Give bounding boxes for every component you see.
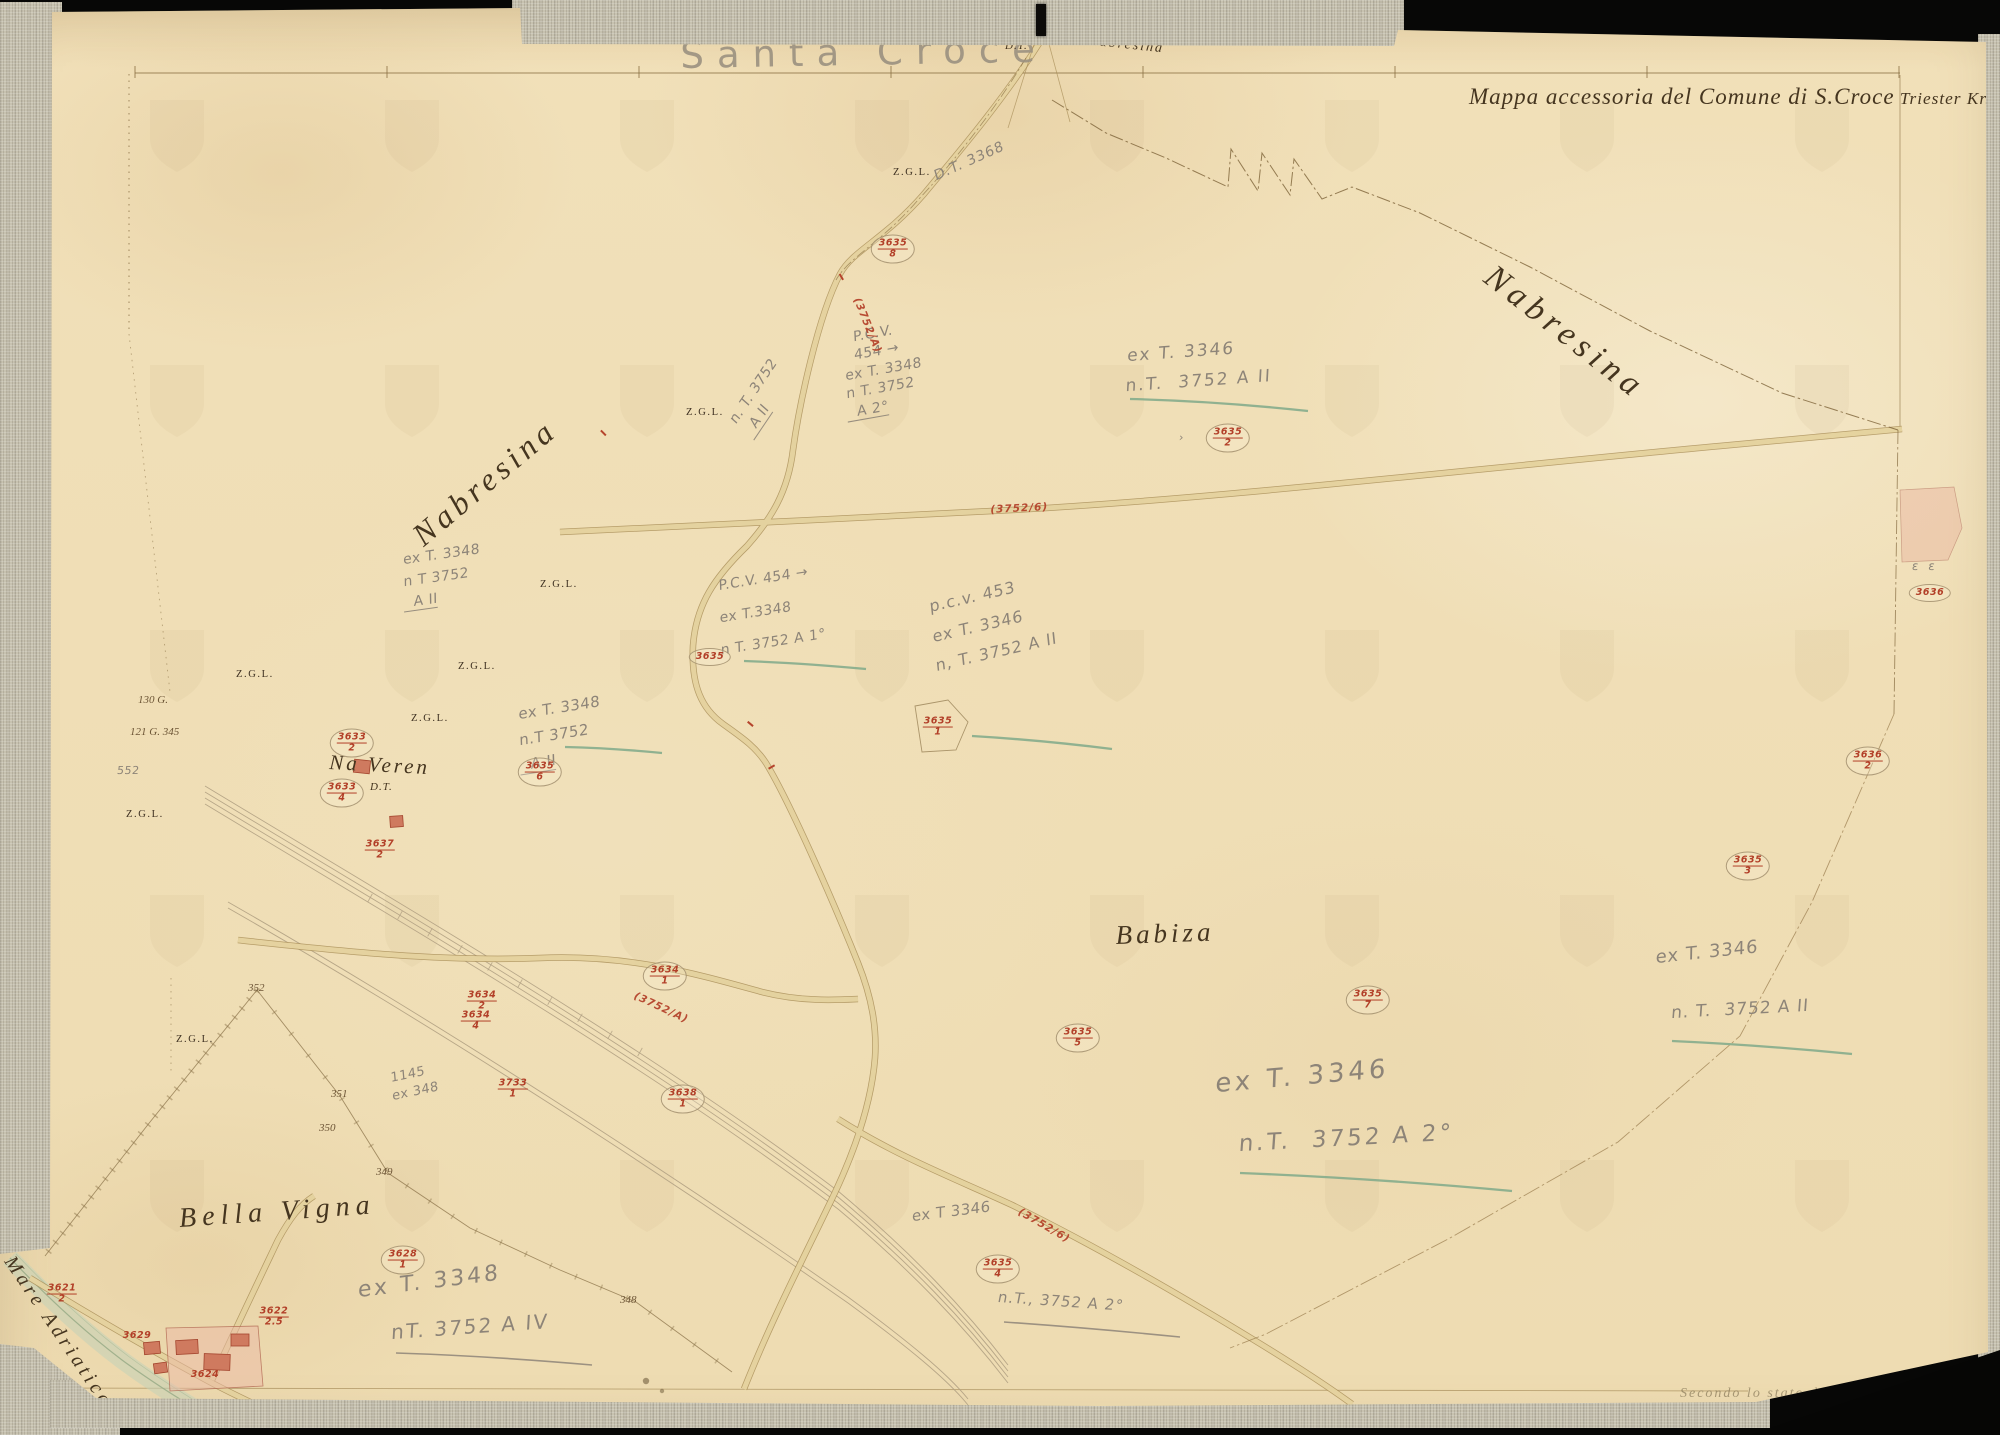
parcel-sub-number: 2 (337, 744, 367, 754)
watermark-shield (855, 630, 909, 702)
parcel-sub-number: 6 (525, 773, 555, 783)
watermark-shield (1325, 895, 1379, 967)
watermark-shield (385, 630, 439, 702)
parcel-number-3636-2: 36362 (1846, 747, 1890, 776)
boundary-number-130-G-: 130 G. (138, 694, 168, 706)
pencil-text: A II (404, 591, 438, 613)
watermark-shield (1560, 630, 1614, 702)
watermark-shield (150, 365, 204, 437)
parcel-number-3635-1: 36351 (923, 717, 953, 738)
watermark-shield (385, 1160, 439, 1232)
parcel-number-3635: 3635 (689, 648, 731, 666)
watermark-shield (1090, 100, 1144, 172)
parcel-number-3634-2: 36342 (467, 991, 497, 1012)
scanned-map-photo: { "map": { "pencil_title": "Santa Croce"… (0, 0, 2000, 1435)
zgl-label-1: Z.G.L. (686, 407, 724, 418)
parcel-sub-number: 8 (878, 250, 908, 260)
watermark-shield (1795, 1160, 1849, 1232)
watermark-shield (620, 630, 674, 702)
parcel-sub-number: 1 (388, 1261, 418, 1271)
parcel-number-3633-2: 36332 (330, 729, 374, 758)
watermark-shield (1090, 1160, 1144, 1232)
railway-lines (205, 786, 1008, 1405)
parcel-sub-number: 1 (923, 728, 953, 738)
watermark-shield (855, 1160, 909, 1232)
watermark-shield (1795, 630, 1849, 702)
parcel-sub-number: 3 (1733, 867, 1763, 877)
parcel-sub-number: 2.5 (259, 1318, 289, 1328)
ink-registration-mark (1036, 4, 1046, 36)
pencil-text: P.C.V. 454 → (718, 564, 808, 594)
parcel-number-3637-2: 36372 (365, 840, 395, 861)
pencil-text: ε ε (1911, 559, 1939, 573)
boundary-number-349: 349 (376, 1166, 393, 1178)
parcel-top-number: 3635 (696, 651, 724, 662)
watermark-shield (385, 100, 439, 172)
map-sheet: Santa Croce Mappa accessoria del Comune … (0, 0, 2000, 1435)
parcel-sub-number: 1 (650, 977, 680, 987)
boundary-number-350: 350 (319, 1122, 336, 1134)
parcel-number-3621-2: 36212 (47, 1284, 77, 1305)
parcel-sub-number: 2 (1853, 762, 1883, 772)
parcel-sub-number: 4 (461, 1022, 491, 1032)
parcel-sub-number: 1 (668, 1100, 698, 1110)
watermark-shield (855, 895, 909, 967)
boundary-number-351: 351 (331, 1088, 348, 1100)
watermark-shield (1325, 1160, 1379, 1232)
parcel-number-3635-6: 36356 (518, 758, 562, 787)
ann-left-cluster: ex T. 3348n T 3752 A II (403, 539, 481, 615)
place-babiza: Babiza (1115, 917, 1215, 951)
parcel-number-3636: 3636 (1909, 584, 1951, 602)
parcel-number-3628-1: 36281 (381, 1246, 425, 1275)
ann-epsilon: ε ε (1911, 558, 1939, 575)
parcel-sub-number: 7 (1353, 1001, 1383, 1011)
parcel-number-3635-7: 36357 (1346, 986, 1390, 1015)
zgl-label-2: Z.G.L. (540, 579, 578, 590)
stain-spot (643, 1378, 649, 1384)
pencil-text: n.T. 3752 A II (1125, 366, 1272, 396)
watermark-shield (1795, 895, 1849, 967)
parcel-number-3634-1: 36341 (643, 962, 687, 991)
map-header-title: Mappa accessoria del Comune di S.Croce T… (1442, 58, 1990, 136)
pencil-text: ex T. 3346 (1127, 338, 1236, 366)
watermark-shield (620, 1160, 674, 1232)
parcel-number-3635-5: 36355 (1056, 1024, 1100, 1053)
watermark-shield (150, 630, 204, 702)
parcel-sub-number: 5 (1063, 1039, 1093, 1049)
watermark-shield (1795, 365, 1849, 437)
pink-parcel-right-edge (1900, 487, 1962, 562)
parcel-top-number: 3624 (191, 1369, 219, 1380)
parcel-number-3624: 3624 (191, 1370, 219, 1380)
boundaries (45, 58, 1898, 1372)
pencil-line: 552 (116, 763, 140, 778)
watermark-shield (620, 895, 674, 967)
watermark-shield (1325, 630, 1379, 702)
parcel-sub-number: 1 (498, 1090, 528, 1100)
watermark-shield (620, 100, 674, 172)
zgl-label-5: Z.G.L. (236, 669, 274, 680)
watermark-shield (855, 100, 909, 172)
neatline-bottom (42, 1388, 1748, 1391)
stain-spot (660, 1389, 664, 1393)
boundary-number-348: 348 (620, 1294, 637, 1306)
watermark-shield (1325, 100, 1379, 172)
parcel-number-3638-1: 36381 (661, 1085, 705, 1114)
header-subtitle-text: Triester Kr. (1895, 89, 1991, 108)
parcel-top-number: 3629 (123, 1330, 151, 1341)
watermark-shield (620, 365, 674, 437)
watermark-shield (1560, 895, 1614, 967)
ann-pcv454-mid: P.C.V. 454 →ex T.3348n T. 3752 A 1° (718, 553, 826, 667)
zgl-label-0: Z.G.L. (893, 167, 931, 178)
parcel-sub-number: 2 (47, 1295, 77, 1305)
watermark-shield (1560, 1160, 1614, 1232)
ann-pcv454-upper: P.C.V. 454 →ex T. 3348n T. 3752 A 2° (843, 317, 924, 423)
parcel-number-3629: 3629 (123, 1331, 151, 1341)
header-title-text: Mappa accessoria del Comune di S.Croce (1469, 84, 1895, 109)
parcel-number-3635-8: 36358 (871, 235, 915, 264)
parcel-number-3635-3: 36353 (1726, 852, 1770, 881)
parcel-top-number: 3636 (1916, 587, 1944, 598)
parcel-number-3635-4: 36354 (976, 1255, 1020, 1284)
watermark-shield (385, 365, 439, 437)
parcel-number-3733-1: 37331 (498, 1079, 528, 1100)
pencil-line: ε ε (1911, 558, 1939, 575)
ann-552: 552 (116, 763, 140, 778)
watermark-shield (1325, 365, 1379, 437)
parcel-sub-number: 4 (983, 1270, 1013, 1280)
zgl-label-4: Z.G.L. (411, 713, 449, 724)
pencil-text: ex T.3348 (719, 599, 791, 626)
parcel-number-3635-2: 36352 (1206, 424, 1250, 453)
zgl-label-7: Z.G.L. (176, 1034, 214, 1045)
parcel-number-3634-4: 36344 (461, 1011, 491, 1032)
green-underlines (565, 399, 1852, 1191)
watermark-shield (1090, 630, 1144, 702)
boundary-southeast (1230, 714, 1894, 1348)
parcel-number-3622-2_5: 36222.5 (259, 1307, 289, 1328)
watermark-shield (150, 895, 204, 967)
ann-ext3346-upper: ex T. 3346n.T. 3752 A II (1125, 332, 1274, 402)
parcel-sub-number: 2 (1213, 439, 1243, 449)
zgl-label-3: Z.G.L. (458, 661, 496, 672)
boundary-number-352: 352 (248, 982, 265, 994)
watermark-shield (150, 100, 204, 172)
parcel-sub-number: 4 (327, 794, 357, 804)
zgl-label-6: Z.G.L. (126, 809, 164, 820)
pencil-text: 552 (116, 764, 140, 777)
label-dt-naveren: D.T. (370, 781, 393, 793)
parcel-number-3633-4: 36334 (320, 779, 364, 808)
parcel-sub-number: 2 (365, 851, 395, 861)
boundary-number-121-G-345: 121 G. 345 (130, 726, 179, 738)
